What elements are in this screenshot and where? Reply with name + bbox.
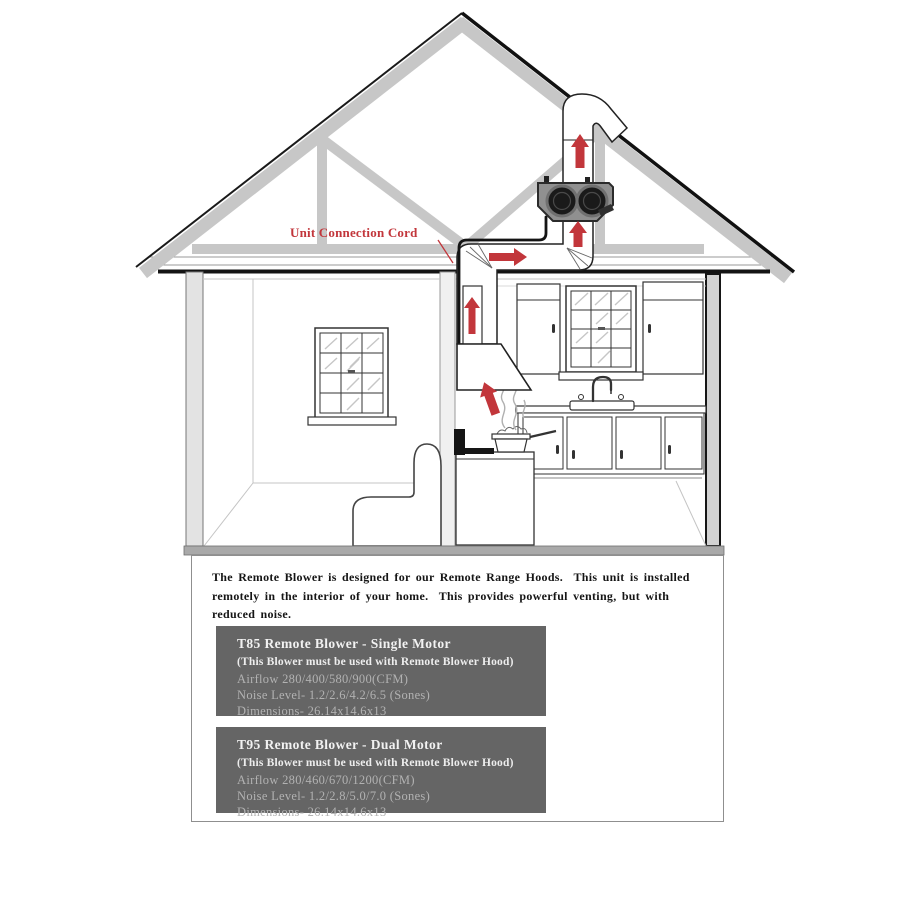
living-room-window <box>308 328 396 425</box>
faucet <box>593 377 611 401</box>
upper-cabinet-left <box>517 284 560 374</box>
product-dimensions: Dimensions- 26.14x14.6x13 <box>237 703 538 719</box>
window-sill <box>308 417 396 425</box>
divider-wall <box>440 272 455 546</box>
product-noise-level: Noise Level- 1.2/2.6/4.2/6.5 (Sones) <box>237 687 538 703</box>
cord-label: Unit Connection Cord <box>290 225 418 241</box>
base-cabinets <box>516 406 706 478</box>
product-dimensions: Dimensions- 26.14x14.6x13 <box>237 804 538 820</box>
info-panel: The Remote Blower is designed for our Re… <box>191 555 724 822</box>
kitchen-sink <box>570 377 634 410</box>
upper-cabinet-right <box>643 282 703 374</box>
foundation <box>184 546 724 555</box>
remote-blower-unit <box>538 176 614 221</box>
product-title: T85 Remote Blower - Single Motor <box>237 636 538 652</box>
cabinet-handle <box>552 324 555 333</box>
left-wall <box>186 272 203 546</box>
window-latch <box>598 327 605 330</box>
window-latch <box>348 370 355 373</box>
blower-motor-left <box>547 186 577 216</box>
roofline-right <box>462 13 794 272</box>
cooktop <box>464 448 494 454</box>
armchair <box>353 444 441 546</box>
cabinet-handle <box>648 324 651 333</box>
product-airflow: Airflow 280/460/670/1200(CFM) <box>237 772 538 788</box>
product-note: (This Blower must be used with Remote Bl… <box>237 655 538 669</box>
house-cutaway-diagram <box>0 0 900 560</box>
product-title: T95 Remote Blower - Dual Motor <box>237 737 538 753</box>
roof-truss <box>136 13 794 278</box>
product-airflow: Airflow 280/400/580/900(CFM) <box>237 671 538 687</box>
kitchen-window <box>559 286 643 380</box>
right-wall <box>706 274 720 546</box>
product-note: (This Blower must be used with Remote Bl… <box>237 756 538 770</box>
panel-description: The Remote Blower is designed for our Re… <box>212 568 708 624</box>
product-card-t85: T85 Remote Blower - Single Motor (This B… <box>216 626 546 716</box>
page: Unit Connection Cord The Remote Blower i… <box>0 0 900 900</box>
product-card-t95: T95 Remote Blower - Dual Motor (This Blo… <box>216 727 546 813</box>
product-noise-level: Noise Level- 1.2/2.8/5.0/7.0 (Sones) <box>237 788 538 804</box>
cord-wall-terminal <box>454 429 465 455</box>
